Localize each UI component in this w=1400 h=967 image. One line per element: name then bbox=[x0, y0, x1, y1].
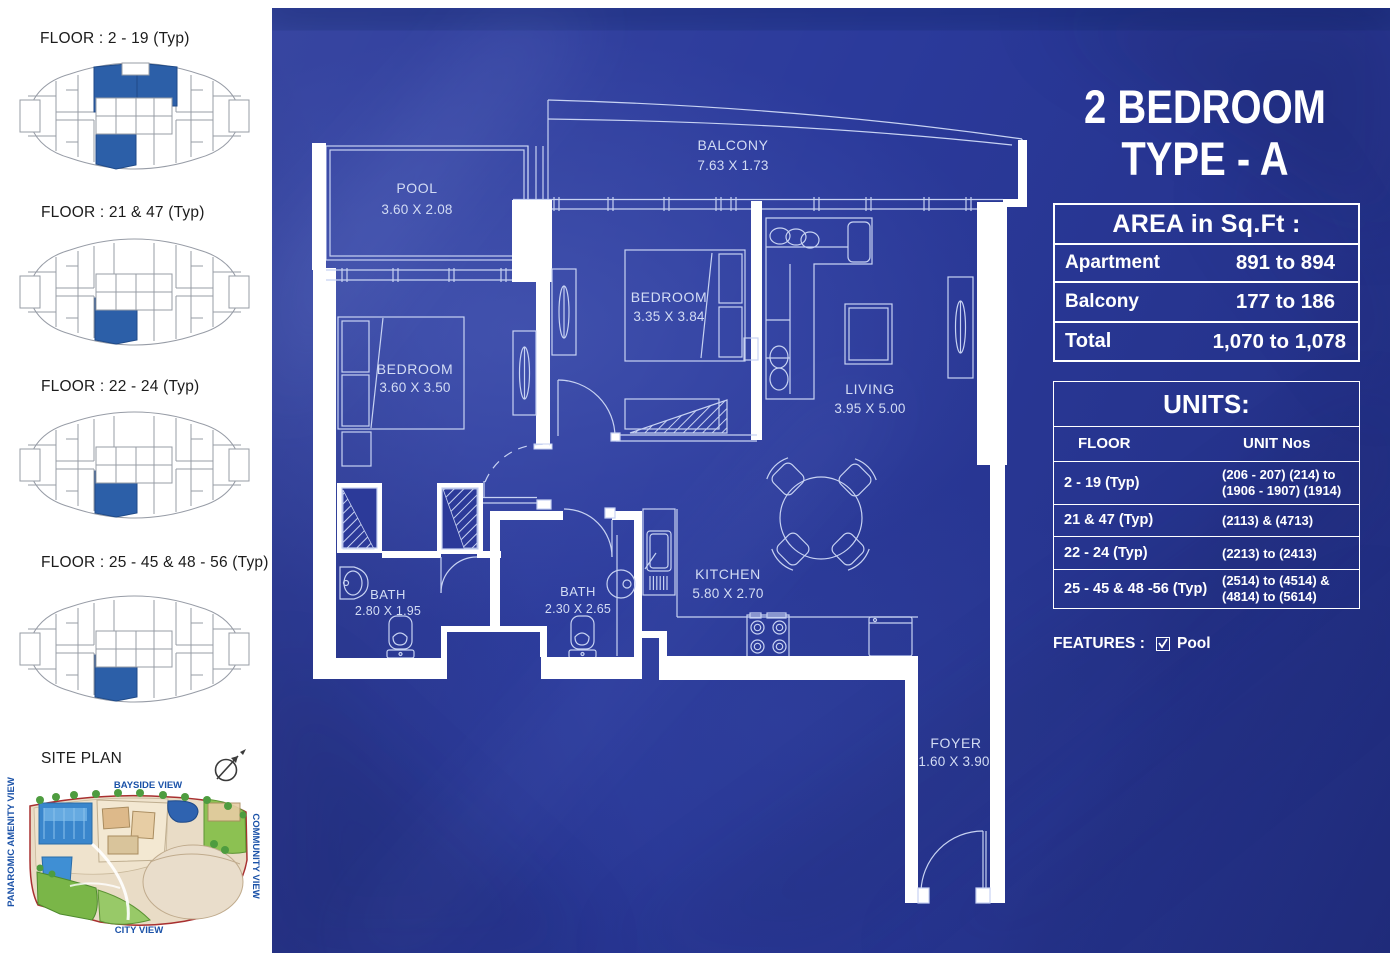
svg-text:3.60 X 3.50: 3.60 X 3.50 bbox=[379, 380, 450, 395]
svg-text:COMMUNITY VIEW: COMMUNITY VIEW bbox=[250, 813, 261, 898]
svg-text:BAYSIDE VIEW: BAYSIDE VIEW bbox=[114, 780, 182, 791]
svg-text:7.63 X 1.73: 7.63 X 1.73 bbox=[697, 158, 768, 173]
svg-text:LIVING: LIVING bbox=[845, 381, 895, 397]
svg-text:3.60 X 2.08: 3.60 X 2.08 bbox=[381, 202, 452, 217]
svg-text:3.35 X 3.84: 3.35 X 3.84 bbox=[633, 309, 705, 324]
svg-text:5.80 X 2.70: 5.80 X 2.70 bbox=[692, 586, 763, 601]
svg-text:1.60 X 3.90: 1.60 X 3.90 bbox=[918, 754, 989, 769]
svg-text:BEDROOM: BEDROOM bbox=[631, 289, 708, 305]
svg-text:BEDROOM: BEDROOM bbox=[377, 361, 454, 377]
svg-text:PANAROMIC AMENITY VIEW: PANAROMIC AMENITY VIEW bbox=[6, 777, 17, 907]
svg-text:CITY VIEW: CITY VIEW bbox=[115, 925, 163, 936]
svg-text:BALCONY: BALCONY bbox=[697, 137, 768, 153]
svg-text:3.95 X 5.00: 3.95 X 5.00 bbox=[834, 401, 905, 416]
svg-text:KITCHEN: KITCHEN bbox=[695, 566, 761, 582]
svg-text:BATH: BATH bbox=[370, 587, 406, 602]
svg-text:2.30 X 2.65: 2.30 X 2.65 bbox=[545, 602, 611, 616]
svg-text:2.80 X 1.95: 2.80 X 1.95 bbox=[355, 604, 421, 618]
svg-text:BATH: BATH bbox=[560, 584, 596, 599]
svg-text:POOL: POOL bbox=[396, 180, 437, 196]
svg-text:FOYER: FOYER bbox=[930, 735, 981, 751]
